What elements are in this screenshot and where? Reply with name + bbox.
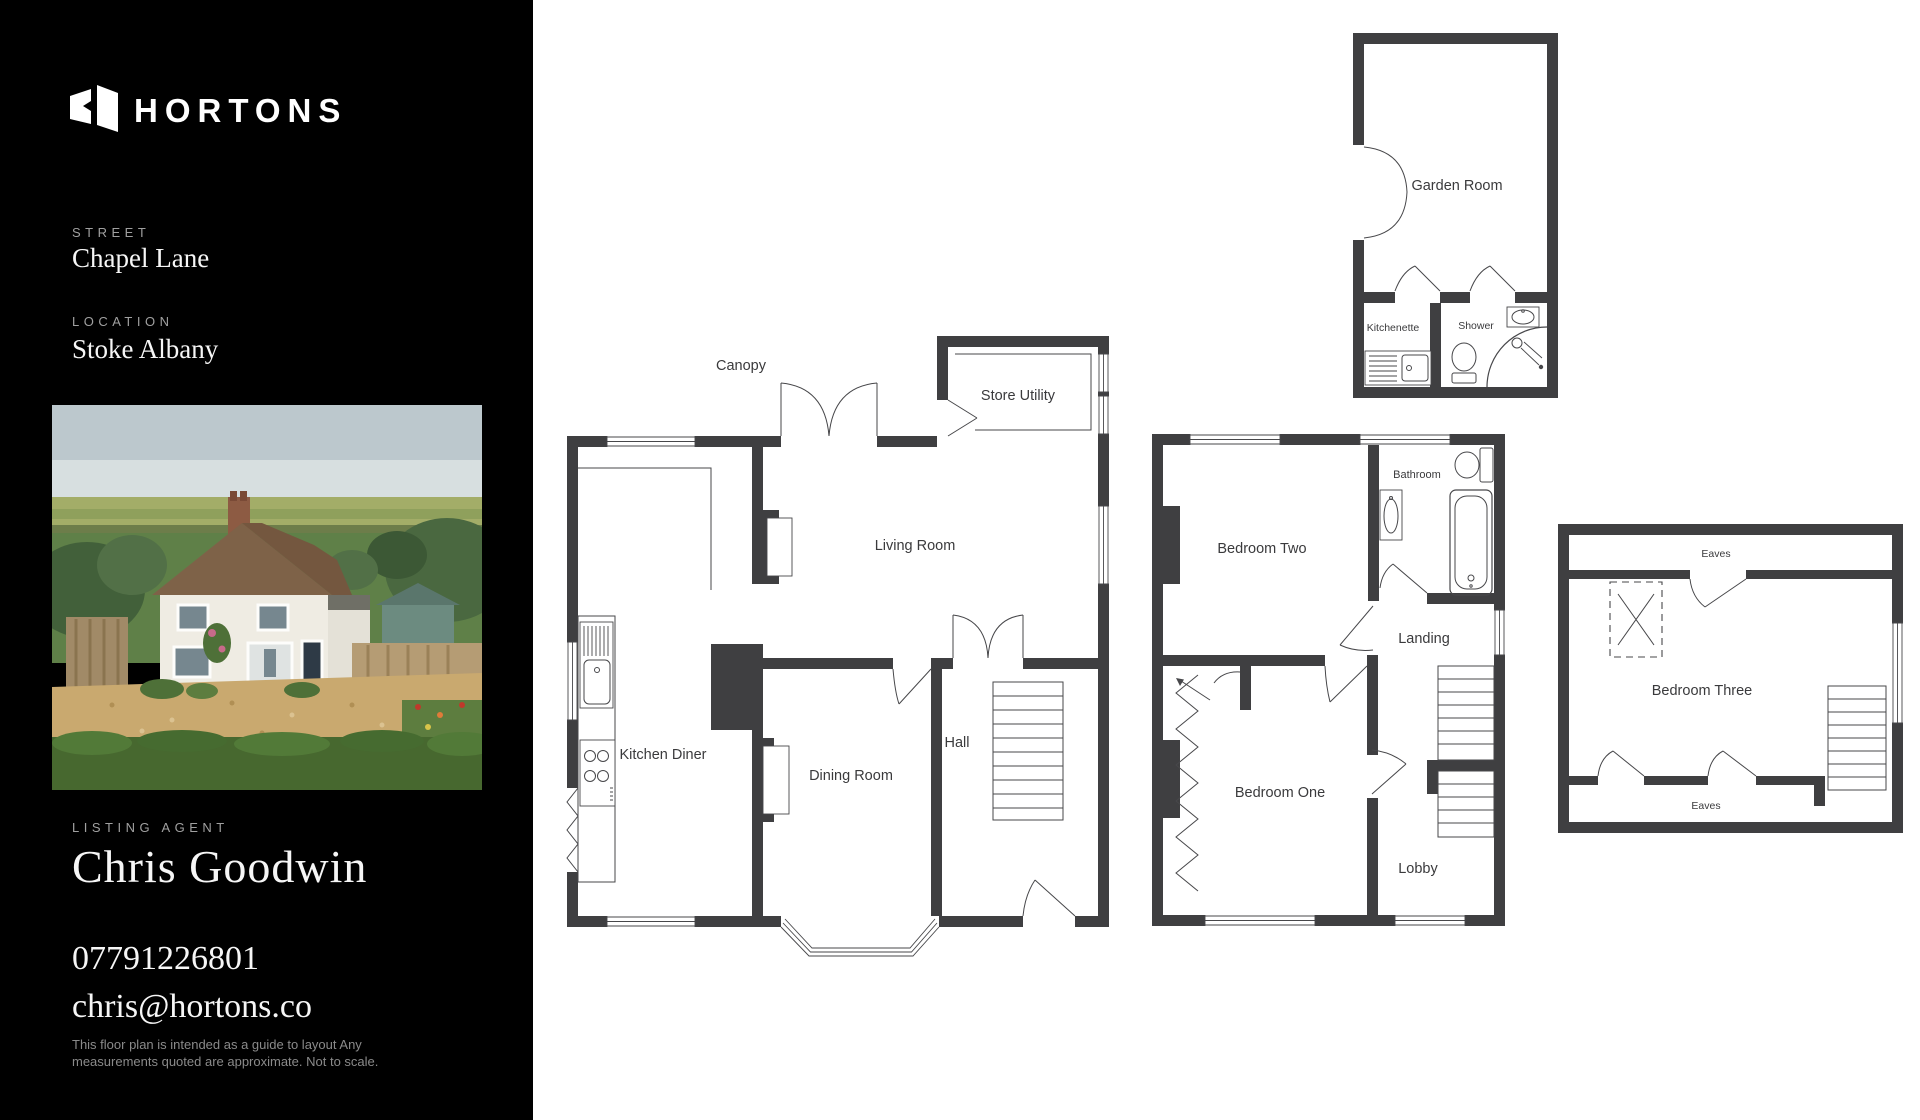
room-labels: Bedroom Two Bathroom Landing Bedroom One…: [1217, 469, 1449, 877]
room-labels: Eaves Bedroom Three Eaves: [1652, 548, 1752, 812]
label-bathroom: Bathroom: [1393, 469, 1441, 481]
label-shower: Shower: [1458, 320, 1494, 332]
wall-break-zigzag: [567, 788, 578, 872]
staircase-lower: [1438, 771, 1494, 837]
room-labels: Canopy Store Utility Living Room Kitchen…: [619, 358, 1055, 784]
stub-door-arc: [1214, 672, 1240, 683]
garden-room-plan: Garden Room Kitchenette Shower: [1345, 25, 1575, 415]
agent-label: LISTING AGENT: [72, 820, 229, 835]
windows: [567, 354, 1109, 927]
label-eaves-bottom: Eaves: [1691, 800, 1720, 812]
toilet: [1452, 343, 1476, 383]
kitchenette-door: [1395, 266, 1440, 291]
label-store-utility: Store Utility: [981, 388, 1056, 404]
agent-email: chris@hortons.co: [72, 988, 312, 1026]
eaves-bottom-door-left: [1598, 751, 1644, 776]
front-door: [1023, 880, 1075, 916]
label-dining-room: Dining Room: [809, 768, 893, 784]
disclaimer: This floor plan is intended as a guide t…: [72, 1036, 402, 1070]
bay-window: [781, 919, 939, 956]
kitchen-block: [711, 644, 752, 730]
label-canopy: Canopy: [716, 358, 767, 374]
kitchen-fixtures: [578, 468, 711, 882]
walls: [1558, 524, 1903, 833]
label-garden-room: Garden Room: [1411, 178, 1502, 194]
wash-basin: [1380, 490, 1402, 540]
eaves-bottom-door-right: [1708, 751, 1756, 776]
disclaimer-line-2: measurements quoted are approximate. Not…: [72, 1053, 402, 1070]
doors: [781, 383, 1075, 916]
windows: [1892, 623, 1903, 723]
label-bedroom-one: Bedroom One: [1235, 785, 1325, 801]
label-hall: Hall: [945, 735, 970, 751]
brand-name: HORTONS: [134, 92, 347, 130]
shower-door: [1470, 266, 1515, 291]
lobby-door: [1372, 750, 1406, 794]
label-eaves-top: Eaves: [1701, 548, 1730, 560]
sidebar: HORTONS STREET Chapel Lane LOCATION Stok…: [0, 0, 533, 1120]
hortons-logo-icon: [70, 84, 120, 138]
bedroom-two-door: [1340, 606, 1373, 650]
label-bedroom-two: Bedroom Two: [1217, 541, 1306, 557]
store-utility-door: [948, 400, 977, 436]
dining-room-door: [893, 669, 931, 704]
walls: [567, 336, 1109, 927]
label-kitchenette: Kitchenette: [1367, 322, 1420, 334]
living-room-double-doors: [953, 615, 1023, 658]
ground-floor-plan: Canopy Store Utility Living Room Kitchen…: [563, 320, 1123, 960]
label-landing: Landing: [1398, 631, 1450, 647]
street-value: Chapel Lane: [72, 243, 209, 274]
label-kitchen-diner: Kitchen Diner: [619, 747, 706, 763]
agent-name: Chris Goodwin: [72, 840, 367, 893]
property-photo: [52, 405, 482, 790]
windows: [1190, 434, 1505, 926]
chimney-breast-bed2: [1163, 506, 1180, 584]
french-doors-canopy: [781, 383, 877, 436]
floorplan-area: Canopy Store Utility Living Room Kitchen…: [533, 0, 1920, 1120]
hob: [580, 740, 615, 806]
bathtub: [1450, 490, 1492, 595]
label-lobby: Lobby: [1398, 861, 1438, 877]
kitchen-sink: [580, 622, 613, 708]
staircase-upper: [1438, 666, 1494, 760]
bathroom-door: [1380, 564, 1427, 593]
label-bedroom-three: Bedroom Three: [1652, 683, 1752, 699]
second-floor-plan: Eaves Bedroom Three Eaves: [1556, 518, 1916, 848]
walls: [1152, 434, 1505, 926]
garden-room-french-doors: [1364, 147, 1407, 238]
shower-enclosure: [1487, 327, 1547, 387]
walls: [1353, 33, 1558, 398]
bedroom-one-door: [1325, 666, 1367, 702]
location-value: Stoke Albany: [72, 334, 218, 365]
disclaimer-line-1: This floor plan is intended as a guide t…: [72, 1036, 402, 1053]
chimney-breast-bed1: [1163, 740, 1180, 818]
first-floor-plan: Bedroom Two Bathroom Landing Bedroom One…: [1150, 420, 1550, 940]
label-living-room: Living Room: [875, 538, 956, 554]
eaves-top-door: [1690, 579, 1746, 607]
loft-hatch: [1610, 582, 1662, 657]
kitchenette-sink: [1365, 351, 1431, 385]
doors: [1598, 579, 1756, 776]
agent-phone: 07791226801: [72, 940, 259, 978]
wash-basin: [1507, 307, 1539, 327]
staircase: [993, 682, 1063, 820]
toilet: [1455, 448, 1493, 482]
kitchen-counter: [578, 468, 711, 590]
street-label: STREET: [72, 225, 150, 240]
brand-logo: HORTONS: [70, 84, 347, 138]
staircase: [1828, 686, 1886, 790]
location-label: LOCATION: [72, 314, 174, 329]
doors: [1364, 147, 1515, 291]
